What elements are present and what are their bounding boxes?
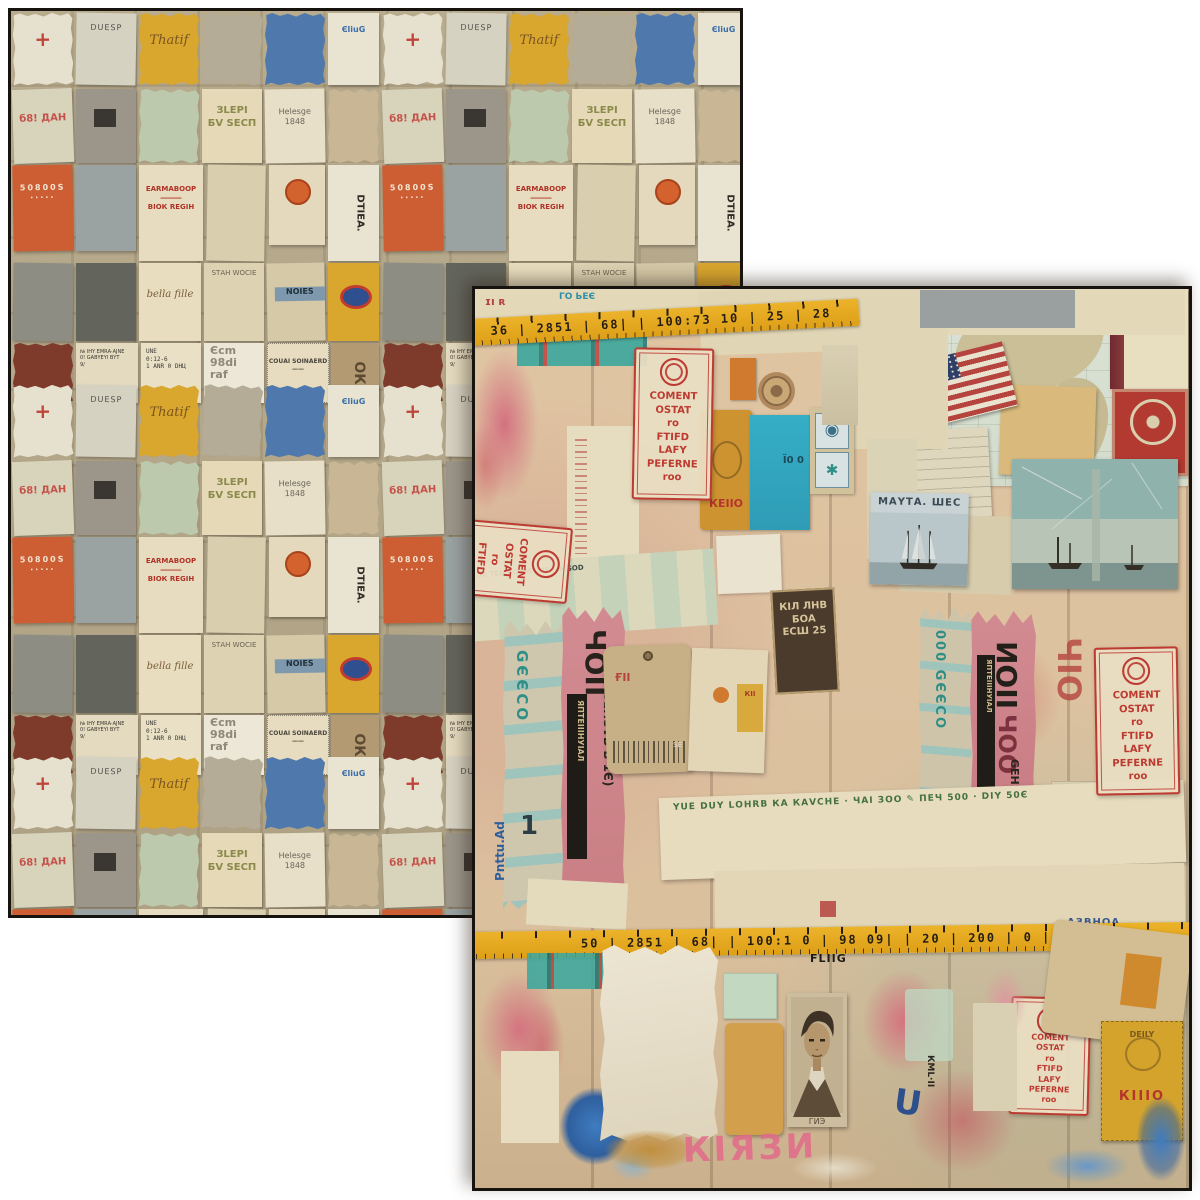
scrap-slate xyxy=(12,262,73,341)
scrap-cross-card: + xyxy=(382,12,443,85)
scrap-bella: bella fille xyxy=(139,635,201,713)
scrap-torn-grey xyxy=(571,12,633,86)
scrap-camera xyxy=(76,89,136,163)
tower-engraving xyxy=(822,345,858,425)
rubber-stamp-a: COMENT OSTAT ro FTIFD LAFY PEFERNE roo xyxy=(632,347,715,500)
white-note xyxy=(716,534,782,594)
dark-ticket: КІЛ ЛНВ БОА ЕСШ 25 xyxy=(770,587,839,694)
scrap-orange-ticket: 50800S ····· xyxy=(12,908,73,918)
scrap-orange-ticket: 50800S ····· xyxy=(12,536,73,623)
scrap-mint xyxy=(508,88,569,163)
scrap-torn-grey xyxy=(201,384,263,458)
engraving-strip xyxy=(920,290,1075,328)
small-barcodes-left xyxy=(526,878,628,929)
scrap-orange-ticket: 50800S ····· xyxy=(382,536,443,623)
scrap-68dah: б8! ДАН xyxy=(382,832,445,908)
scrap-ticket-blue: ЄliuG xyxy=(698,13,743,85)
product-photo-canvas: +DUESPThatifЄliuGб8! ДАНЗLЕРI БV ЅЕСПHel… xyxy=(0,0,1200,1200)
scrap-68dah: б8! ДАН xyxy=(382,88,445,164)
scrap-script-yellow: Thatif xyxy=(139,757,199,829)
mustard-tag xyxy=(725,1023,783,1135)
scrap-script-yellow: Thatif xyxy=(139,385,199,457)
ship-photo-large xyxy=(1012,459,1178,589)
scrap-slate xyxy=(382,262,443,341)
red-stamp-mark xyxy=(820,901,836,917)
tag-orange-dot xyxy=(713,687,729,703)
scrap-68dah: б8! ДАН xyxy=(12,460,75,536)
scrap-68dah: б8! ДАН xyxy=(382,460,445,536)
blue-stamp-2: ✱ xyxy=(815,452,849,488)
white-splat xyxy=(773,1147,895,1189)
portrait-image xyxy=(787,993,847,1117)
mint-bits xyxy=(905,989,953,1061)
scrap-tan-crumpled xyxy=(328,833,379,907)
scrap-slate xyxy=(382,634,443,713)
scrap-carmaboop: ЕАRМАВООР ――― ВIОК RЕGIН xyxy=(139,537,203,633)
scrap-dtiea: DТIЕА. xyxy=(328,537,379,633)
scrap-map-blue xyxy=(635,13,695,85)
kml-vertical: КМL·ІІ xyxy=(919,1055,935,1119)
sailing-ship-image xyxy=(869,512,968,586)
ship-photo-caption: МАYТА. ШЕС xyxy=(870,492,968,514)
scrap-dtiea: DТIЕА. xyxy=(328,165,379,261)
scrap-duesp: DUESP xyxy=(75,12,136,85)
khaki-tag-barcode: ЅЕ xyxy=(613,741,685,763)
pink-left-banner: ЯПТЕІІІНУІАЛ xyxy=(567,694,587,859)
scrap-helesge: Helesge 1848 xyxy=(264,460,325,535)
scrap-cross-card: + xyxy=(382,384,443,457)
rubber-stamp-b: COMENT OSTAT ro FTIFD LAFY PEFERNE roo xyxy=(472,516,573,604)
scrap-slepi: ЗLЕРI БV ЅЕСП xyxy=(202,89,262,163)
scrap-dtiea: DТIЕА. xyxy=(698,165,743,261)
rubber-stamp-c: COMENT OSTAT ro FTIFD LAFY PEFERNE roo xyxy=(1094,646,1181,795)
scrap-map-blue xyxy=(265,757,325,829)
ship-photo-small: МАYТА. ШЕС xyxy=(869,492,969,586)
scrap-camera xyxy=(76,833,136,907)
scrap-mint xyxy=(138,832,199,907)
teal-ticket-right-text: 000 GЄЄСО xyxy=(923,630,947,780)
scrap-helesge: Helesge 1848 xyxy=(264,832,325,907)
scrap-greyblue xyxy=(76,537,136,623)
khaki-tag-hole xyxy=(643,651,653,661)
scrap-mint xyxy=(138,460,199,535)
scrap-newsprint xyxy=(206,909,266,918)
scrap-cross-card: + xyxy=(12,12,73,85)
tan-tag-orange-label xyxy=(1120,953,1162,1009)
scrap-script-yellow: Thatif xyxy=(509,13,569,85)
scrap-carmaboop: ЕАRМАВООР ――― ВIОК RЕGIН xyxy=(139,165,203,261)
scrap-duesp: DUESP xyxy=(75,384,136,457)
gold-label-letters: КЕІІО xyxy=(704,497,748,519)
khaki-tag-fii: ҒІІ xyxy=(615,671,645,689)
scrap-duesp: DUESP xyxy=(75,756,136,829)
scrap-newsprint xyxy=(576,165,636,262)
scrap-slate xyxy=(12,634,73,713)
scrap-tan-crumpled xyxy=(328,461,379,535)
scrap-greyblue xyxy=(446,165,506,251)
scrap-dtiea: DТIЕА. xyxy=(328,909,379,918)
man-portrait-photo: ГИЭ xyxy=(787,993,847,1127)
scrap-orange-ticket: 50800S ····· xyxy=(382,908,443,918)
scrap-ticket-blue: ЄliuG xyxy=(328,757,379,829)
news-accent-teal: ГО ЬЕЄ xyxy=(559,292,649,308)
scrap-slepi: ЗLЕРI БV ЅЕСП xyxy=(202,833,262,907)
scrap-map-blue xyxy=(265,385,325,457)
scrap-torn-grey xyxy=(201,12,263,86)
scrap-tan-crumpled xyxy=(328,89,379,163)
tag-yellow-sticker: КІІ xyxy=(737,684,763,732)
scrap-bella: bella fille xyxy=(139,263,201,341)
scrap-slepi: ЗLЕРI БV ЅЕСП xyxy=(572,89,632,163)
scrap-68dah: б8! ДАН xyxy=(12,832,75,908)
scrap-noies: NОIЕS xyxy=(266,262,325,341)
scrap-oval-badge xyxy=(328,635,379,713)
portrait-caption: ГИЭ xyxy=(787,1117,847,1126)
blue-paint-corner2 xyxy=(1031,1143,1143,1189)
scrap-helesge: Helesge 1848 xyxy=(634,88,695,163)
pink-right-banner: ЯПТЕІІІНУІАЛ xyxy=(977,655,995,805)
orange-mini-label xyxy=(730,358,756,400)
mint-label xyxy=(723,973,777,1019)
scrap-ticket-blue: ЄliuG xyxy=(328,385,379,457)
grey-barcode-column xyxy=(973,1003,1017,1111)
scrap-oval-badge xyxy=(328,263,379,341)
scrap-ticket-blue: ЄliuG xyxy=(328,13,379,85)
scrap-noies: NОIЕS xyxy=(266,634,325,713)
scrap-helesge: Helesge 1848 xyxy=(264,88,325,163)
scrap-carmaboop: ЕАRМАВООР ――― ВIОК RЕGIН xyxy=(509,165,573,261)
teal-ticket-left-one: 1 xyxy=(520,810,546,850)
scrap-leaf-slate xyxy=(76,635,136,713)
pnttuad-left: Рnttu.Аd xyxy=(493,785,513,881)
scrap-newsprint xyxy=(206,165,266,262)
scrap-stah-wocie: SТАН WОСIЕ xyxy=(204,635,264,713)
cream-weathered-panel xyxy=(600,945,718,1141)
scrap-script-yellow: Thatif xyxy=(139,13,199,85)
scrap-stah-wocie: SТАН WОСIЕ xyxy=(204,263,264,341)
deily-emblem-ring xyxy=(1125,1037,1161,1071)
scrapbook-sheet-front: ІНОВІЗ ЗОІ ГО ЬЕЄɪı ʀКЕІІОЇ0 0◉✱ЅЕ ТЕЦ С… xyxy=(472,286,1192,1191)
scrap-cross-card: + xyxy=(382,756,443,829)
wooden-bobbin xyxy=(758,372,795,410)
scrap-orange-ticket: 50800S ····· xyxy=(382,164,443,251)
scrap-tan-crumpled xyxy=(698,89,743,163)
scrap-cross-card: + xyxy=(12,756,73,829)
scrap-mint xyxy=(138,88,199,163)
scrap-68dah: б8! ДАН xyxy=(12,88,75,164)
cyan-ticket: Ї0 0 xyxy=(750,415,810,530)
scrap-greyblue xyxy=(76,909,136,918)
scrap-duesp: DUESP xyxy=(445,12,506,85)
teal-ticket-left-text: GЄЄСО xyxy=(505,650,531,765)
scrap-badge-orange xyxy=(269,909,325,918)
scrap-orange-ticket: 50800S ····· xyxy=(12,164,73,251)
scrap-cross-card: + xyxy=(12,384,73,457)
scrap-map-blue xyxy=(265,13,325,85)
scrap-torn-grey xyxy=(201,756,263,830)
harbor-postcard-image xyxy=(1012,459,1178,589)
scrap-slepi: ЗLЕРI БV ЅЕСП xyxy=(202,461,262,535)
scrap-camera xyxy=(446,89,506,163)
gold-label-emblem xyxy=(712,441,742,479)
scrap-camera xyxy=(76,461,136,535)
scrap-greyblue xyxy=(76,165,136,251)
scrap-carmaboop: ЕАRМАВООР ――― ВIОК RЕGIН xyxy=(139,909,203,918)
scrap-leaf-slate xyxy=(76,263,136,341)
scrap-newsprint xyxy=(206,537,266,634)
